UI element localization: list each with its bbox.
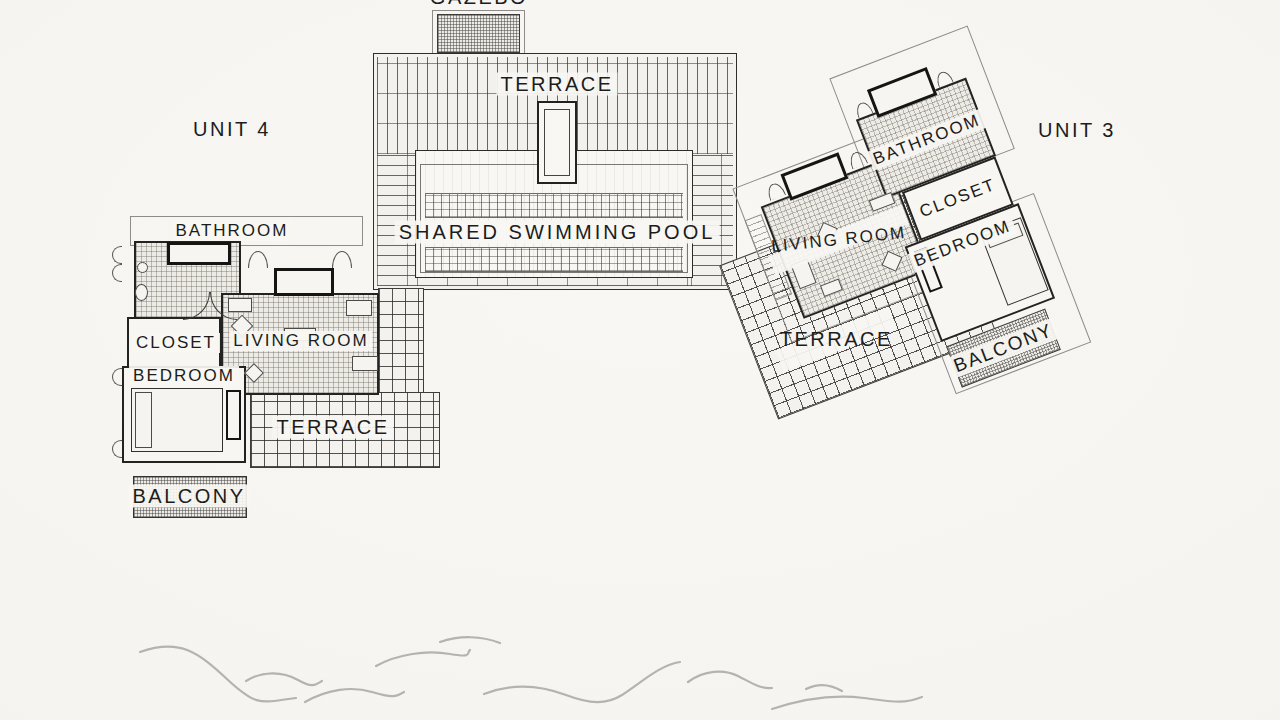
- unit4-toilet: [135, 284, 148, 301]
- shared-terrace-label: TERRACE: [496, 73, 617, 96]
- unit4-bedroom-label-text: BEDROOM: [133, 366, 235, 385]
- shoreline-waves: [0, 610, 1280, 720]
- gazebo-label: GAZEBO: [430, 0, 528, 9]
- pool-steps-inner: [544, 109, 570, 176]
- pool-label: SHARED SWIMMING POOL: [395, 221, 720, 244]
- unit4-entry-arc-4: [112, 440, 122, 458]
- unit4-balcony-label: BALCONY: [128, 485, 249, 508]
- unit4-door-arc-2: [332, 251, 352, 268]
- unit4-entry-arc-2: [112, 264, 122, 282]
- unit4-living-room-label-text: LIVING ROOM: [233, 331, 368, 350]
- unit4-walkway: [378, 288, 424, 394]
- shared-terrace-label-text: TERRACE: [500, 73, 613, 95]
- unit4-sofa: [274, 268, 334, 296]
- floor-plan-canvas: GAZEBO TERRACE SHARED SWIMMING POOL UNIT…: [0, 0, 1280, 720]
- gazebo-label-text: GAZEBO: [430, 0, 528, 8]
- unit3-label-text: UNIT 3: [1038, 119, 1116, 141]
- unit4-label-text: UNIT 4: [193, 118, 271, 140]
- pool-tile-band-bottom: [425, 247, 683, 272]
- unit4-door-arc-1: [248, 251, 268, 268]
- unit4-living-room-label: LIVING ROOM: [229, 331, 372, 351]
- unit4-entry-arc-3: [112, 368, 122, 386]
- unit4-bathroom-label-text: BATHROOM: [176, 221, 289, 240]
- unit4-entry-arc-1: [112, 246, 122, 264]
- unit4-bathtub: [167, 242, 231, 265]
- unit4-bedroom-label: BEDROOM: [129, 366, 239, 386]
- unit4-bed-pillow: [135, 392, 152, 448]
- pool-label-text: SHARED SWIMMING POOL: [399, 221, 716, 243]
- unit4-balcony-label-text: BALCONY: [132, 485, 245, 507]
- unit4-closet-label: CLOSET: [132, 333, 220, 353]
- unit4-chair-1: [346, 300, 372, 316]
- pool-tile-band-top: [425, 193, 683, 218]
- unit4-side-table: [228, 298, 252, 312]
- unit4-closet-label-text: CLOSET: [136, 333, 216, 352]
- unit3-terrace-label-text: TERRACE: [780, 328, 893, 351]
- unit4-chair-2: [352, 356, 378, 371]
- unit4-dresser: [226, 390, 241, 440]
- unit4-terrace-label: TERRACE: [272, 416, 393, 439]
- unit3-label: UNIT 3: [1038, 119, 1116, 142]
- unit4-sink: [137, 262, 148, 273]
- unit4-label: UNIT 4: [193, 118, 271, 141]
- unit4-bathroom-label: BATHROOM: [172, 221, 293, 241]
- gazebo-structure: [437, 14, 520, 53]
- pool-steps: [537, 101, 577, 184]
- unit4-terrace-label-text: TERRACE: [276, 416, 389, 438]
